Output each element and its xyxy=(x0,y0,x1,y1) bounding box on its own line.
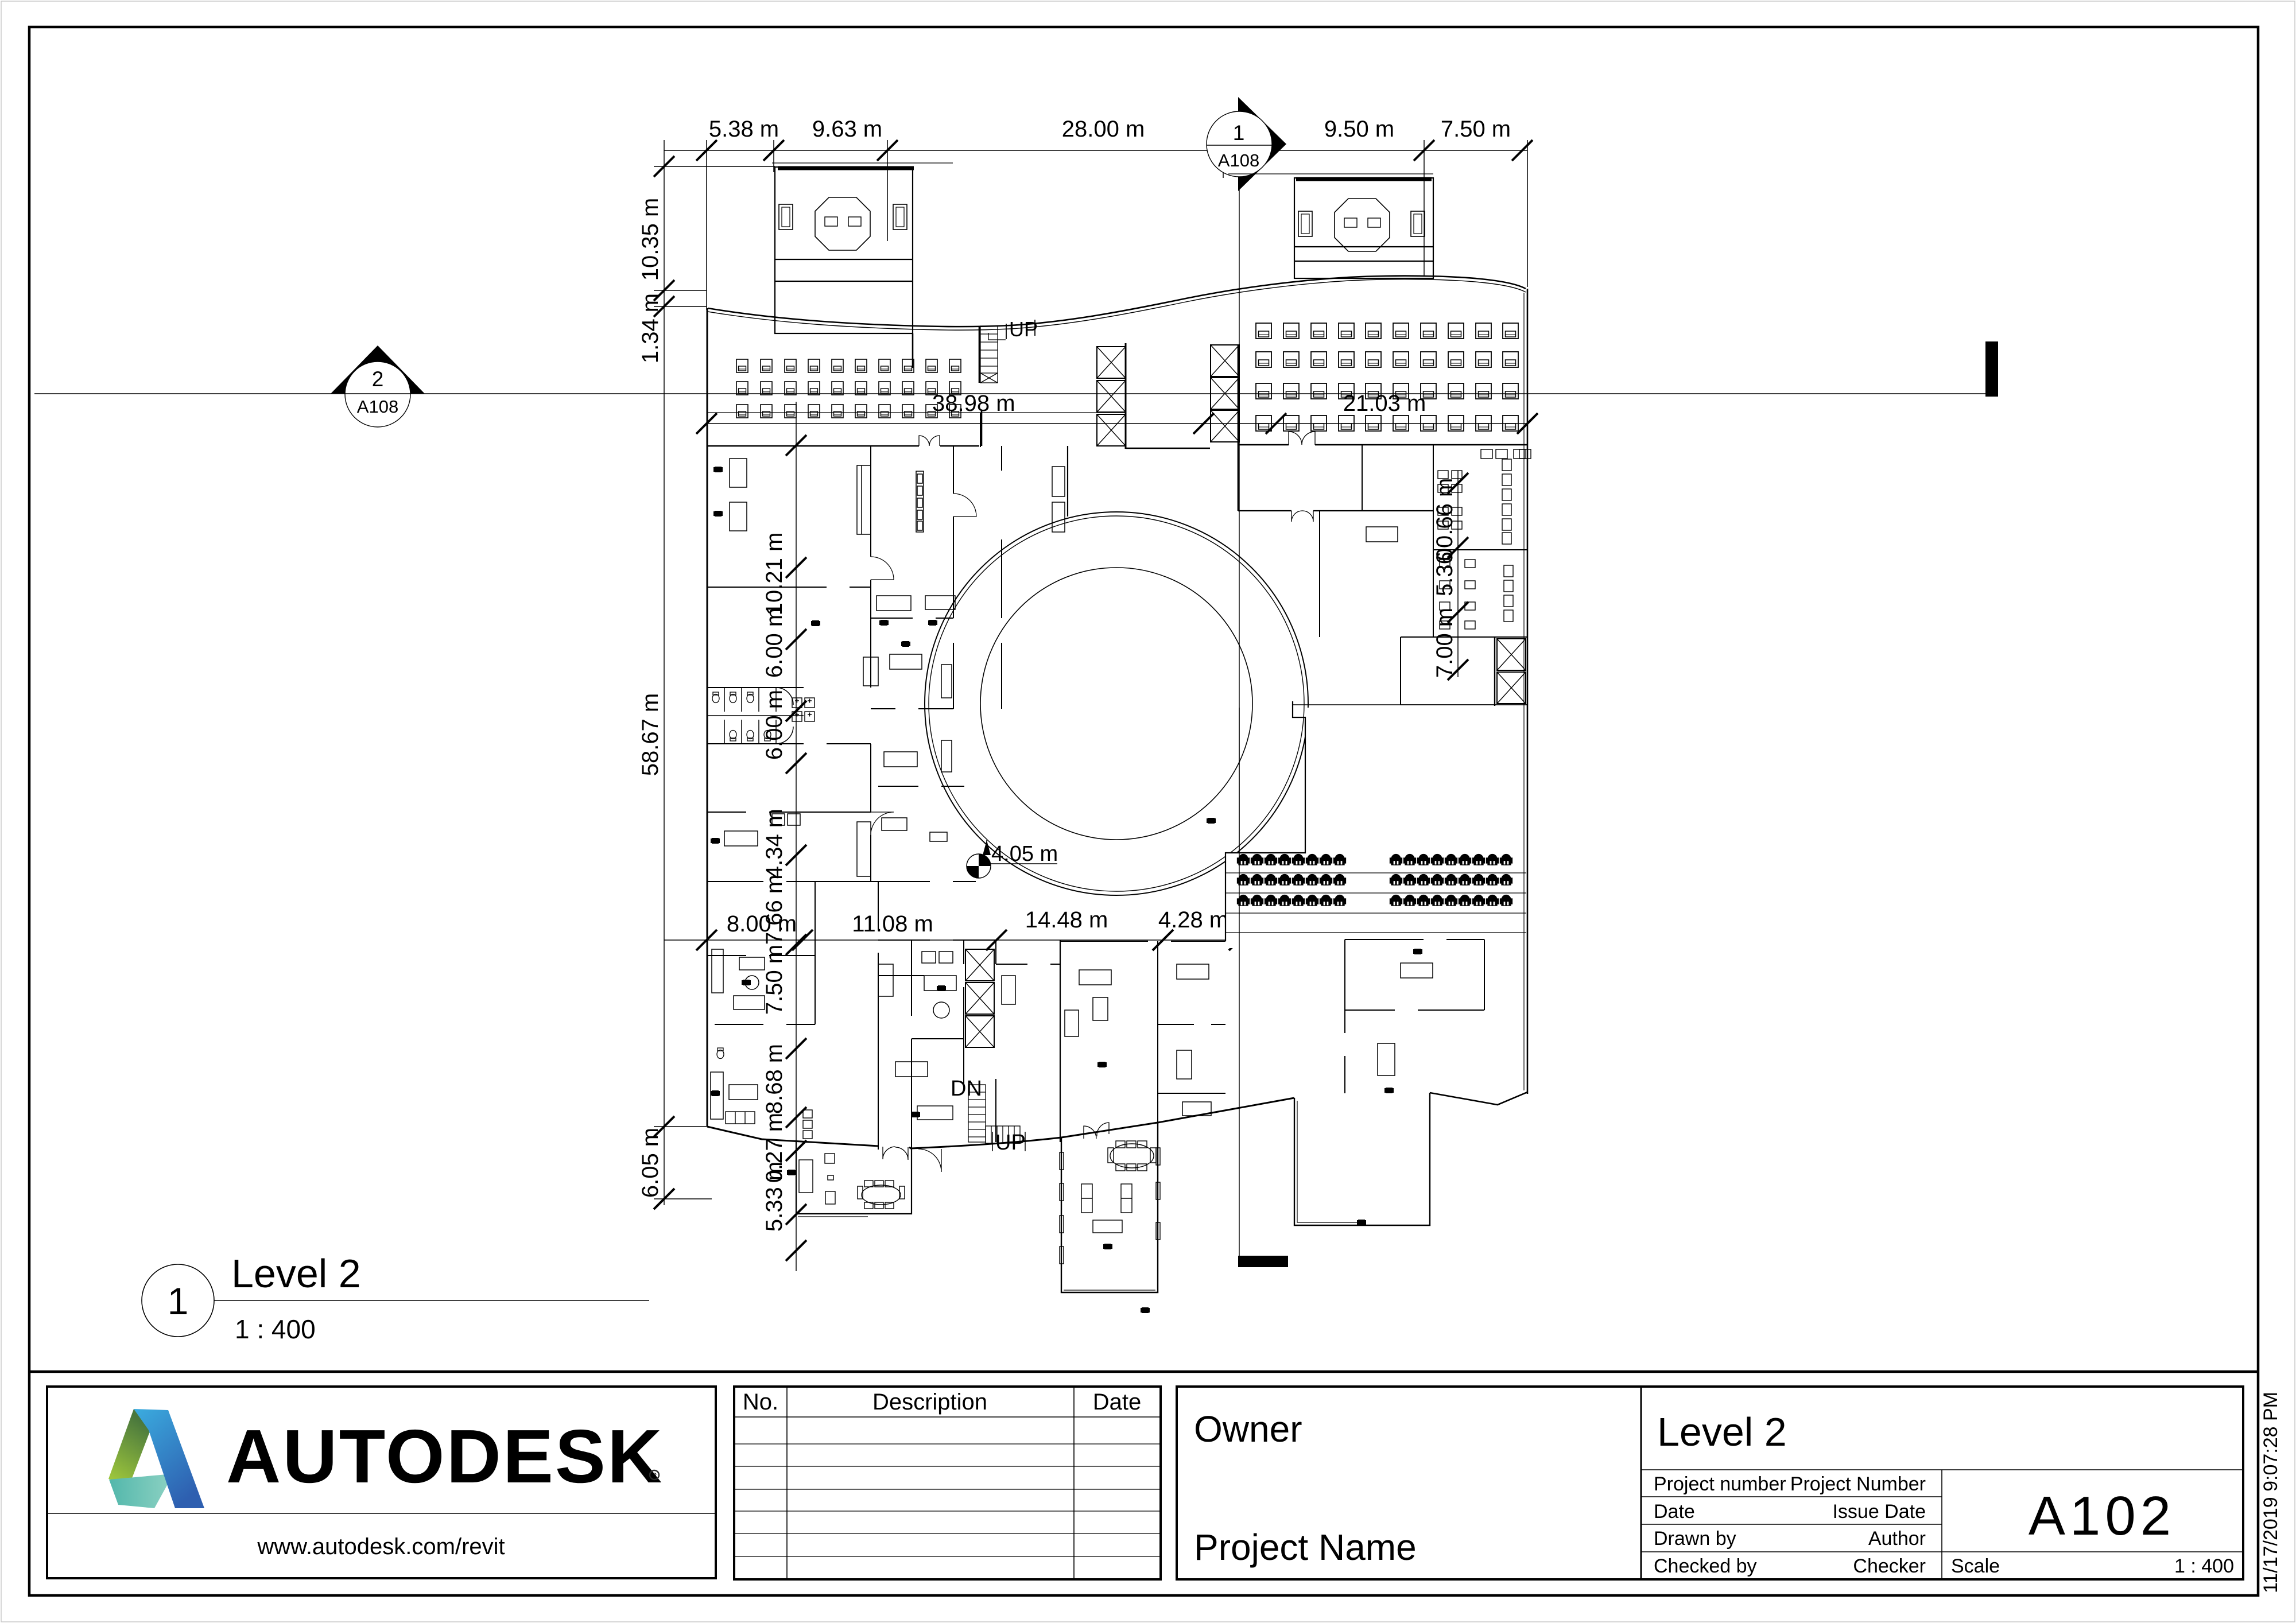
svg-text:14.48 m: 14.48 m xyxy=(1025,907,1108,933)
svg-text:10.21 m: 10.21 m xyxy=(762,533,787,616)
svg-text:Level 2: Level 2 xyxy=(231,1251,361,1296)
svg-text:Checker: Checker xyxy=(1853,1555,1926,1577)
svg-text:Checked by: Checked by xyxy=(1654,1555,1757,1577)
svg-text:DN: DN xyxy=(951,1077,982,1101)
svg-text:UP: UP xyxy=(1009,317,1038,341)
svg-text:Date: Date xyxy=(1654,1501,1695,1523)
svg-text:5.33 m: 5.33 m xyxy=(762,1162,787,1232)
svg-text:2: 2 xyxy=(372,367,384,391)
svg-text:1: 1 xyxy=(168,1280,189,1322)
svg-text:Project number: Project number xyxy=(1654,1473,1786,1495)
svg-text:1 : 400: 1 : 400 xyxy=(2174,1555,2234,1577)
svg-text:Project Number: Project Number xyxy=(1790,1473,1926,1495)
svg-text:Description: Description xyxy=(872,1389,987,1415)
svg-text:11/17/2019 9:07:28 PM: 11/17/2019 9:07:28 PM xyxy=(2260,1392,2282,1593)
svg-text:1 : 400: 1 : 400 xyxy=(235,1314,316,1344)
svg-text:7.00 m: 7.00 m xyxy=(1432,608,1457,678)
svg-text:Scale: Scale xyxy=(1951,1555,2000,1577)
svg-text:4.28 m: 4.28 m xyxy=(1158,907,1228,933)
svg-text:R: R xyxy=(652,1471,657,1480)
svg-text:Drawn by: Drawn by xyxy=(1654,1528,1736,1550)
svg-text:6.05 m: 6.05 m xyxy=(638,1128,663,1198)
svg-text:Level 2: Level 2 xyxy=(1657,1410,1787,1454)
svg-text:5.38 m: 5.38 m xyxy=(709,117,779,142)
svg-text:www.autodesk.com/revit: www.autodesk.com/revit xyxy=(257,1534,505,1559)
svg-text:No.: No. xyxy=(743,1389,778,1415)
svg-text:A108: A108 xyxy=(357,397,398,417)
svg-text:A102: A102 xyxy=(2029,1485,2175,1547)
svg-text:Issue Date: Issue Date xyxy=(1832,1501,1926,1523)
svg-text:Author: Author xyxy=(1868,1528,1926,1550)
svg-text:5.36: 5.36 xyxy=(1432,552,1457,596)
svg-text:Owner: Owner xyxy=(1194,1408,1302,1450)
svg-text:4.05 m: 4.05 m xyxy=(991,842,1058,866)
svg-text:9.63 m: 9.63 m xyxy=(812,117,882,142)
svg-text:UP: UP xyxy=(995,1131,1026,1155)
svg-text:1.34 m: 1.34 m xyxy=(638,293,663,363)
svg-text:Project Name: Project Name xyxy=(1194,1527,1417,1568)
svg-text:1: 1 xyxy=(1233,121,1245,145)
svg-text:A108: A108 xyxy=(1218,150,1259,170)
svg-text:58.67 m: 58.67 m xyxy=(638,693,663,776)
svg-text:10.35 m: 10.35 m xyxy=(638,198,663,281)
svg-text:6.00 m: 6.00 m xyxy=(762,690,787,760)
svg-text:8.00 m: 8.00 m xyxy=(727,911,797,937)
svg-text:00.66 m: 00.66 m xyxy=(1432,478,1457,561)
svg-text:21.03 m: 21.03 m xyxy=(1343,391,1426,416)
svg-text:28.00 m: 28.00 m xyxy=(1062,117,1145,142)
svg-text:8.68 m: 8.68 m xyxy=(762,1044,787,1114)
svg-text:4.34 m: 4.34 m xyxy=(762,809,787,879)
svg-text:11.08 m: 11.08 m xyxy=(852,911,933,937)
svg-text:7.50 m: 7.50 m xyxy=(1441,117,1511,142)
svg-text:9.50 m: 9.50 m xyxy=(1324,117,1394,142)
svg-text:Date: Date xyxy=(1093,1389,1142,1415)
svg-text:6.00 m: 6.00 m xyxy=(762,608,787,678)
svg-text:AUTODESK: AUTODESK xyxy=(226,1414,664,1498)
